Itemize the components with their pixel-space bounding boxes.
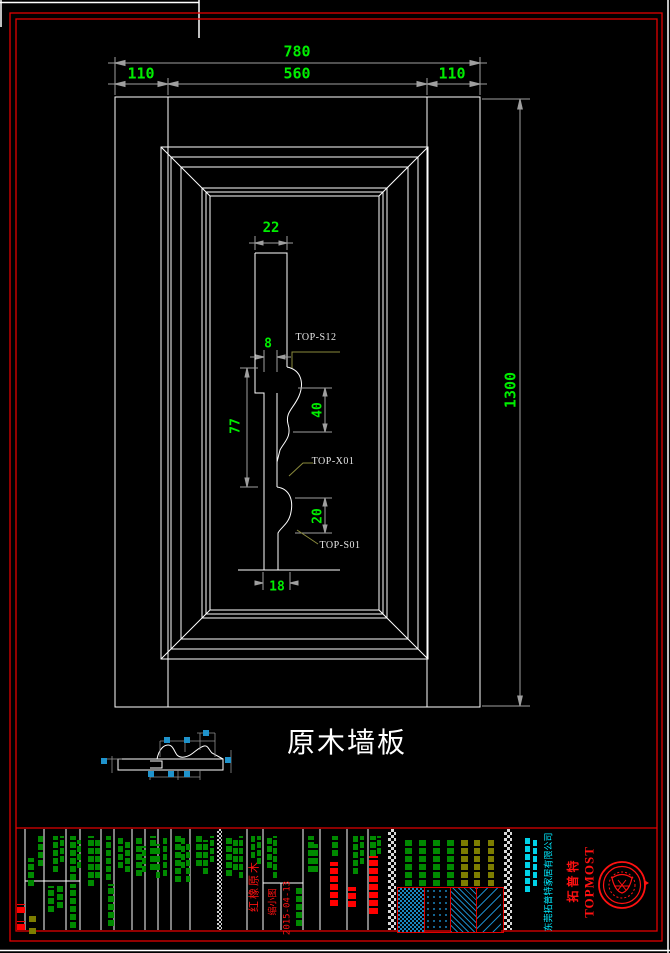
illegible-text-bar — [533, 838, 537, 886]
legend-swatch — [398, 888, 424, 932]
illegible-text-bar — [267, 836, 272, 868]
illegible-text-bar — [163, 838, 167, 876]
dim-left-stile: 110 — [127, 67, 154, 82]
dim-overall-width: 780 — [283, 45, 310, 60]
illegible-text-bar — [273, 836, 277, 878]
illegible-text-bar — [433, 838, 440, 886]
illegible-text-bar — [142, 846, 146, 872]
illegible-text-bar — [419, 838, 426, 886]
film-strip-divider — [504, 829, 512, 930]
illegible-text-bar — [405, 838, 412, 886]
dim-base: 18 — [269, 581, 285, 594]
illegible-text-bar — [370, 836, 376, 856]
page-edge-lines — [0, 0, 670, 953]
part-label-top-s01: TOP-S01 — [319, 541, 360, 551]
dim-lower-curve: 20 — [312, 508, 325, 524]
topmost-logo-seal — [599, 862, 649, 908]
tiny-cyan-dim-mark — [225, 757, 231, 763]
illegible-text-bar — [360, 836, 364, 864]
legend-swatch — [424, 888, 450, 932]
illegible-text-bar — [330, 862, 338, 906]
tiny-cyan-dim-mark — [168, 771, 174, 777]
illegible-text-bar — [239, 836, 243, 878]
illegible-text-bar — [257, 836, 261, 864]
illegible-text-bar — [474, 840, 480, 886]
dim-body: 77 — [230, 418, 243, 434]
legend-swatch — [450, 888, 476, 932]
illegible-text-bar — [70, 836, 76, 880]
dim-right-stile: 110 — [438, 67, 465, 82]
illegible-text-bar — [118, 836, 123, 868]
company-name: 东莞拓普特家居有限公司 — [545, 832, 554, 931]
illegible-text-bar — [314, 844, 318, 872]
illegible-text-bar — [186, 844, 190, 882]
dim-upper-curve: 40 — [312, 402, 325, 418]
drawing-linework — [0, 0, 670, 953]
illegible-text-bar — [203, 840, 208, 874]
illegible-text-bar — [17, 921, 25, 930]
reduced-scale-note: 缩小图 — [269, 888, 278, 915]
illegible-text-bar — [28, 858, 34, 886]
illegible-text-bar — [70, 884, 76, 928]
date-text: 2015-04-13 — [284, 881, 293, 935]
illegible-text-bar — [296, 888, 302, 926]
film-strip-divider — [217, 829, 222, 930]
illegible-text-bar — [447, 838, 454, 886]
tiny-cyan-dim-mark — [203, 730, 209, 736]
cad-sheet: { "colors": { "background": "#000000", "… — [0, 0, 670, 953]
illegible-text-bar — [125, 840, 130, 872]
illegible-text-bar — [210, 836, 214, 862]
illegible-text-bar — [348, 887, 356, 907]
illegible-text-bar — [108, 884, 114, 926]
illegible-text-bar — [251, 836, 255, 858]
illegible-text-bar — [77, 840, 81, 868]
material-text: 红橡原木 — [250, 860, 261, 912]
illegible-text-bar — [196, 836, 202, 866]
illegible-text-bar — [60, 836, 64, 862]
tiny-cyan-dim-mark — [148, 771, 154, 777]
drawing-title: 原木墙板 — [287, 730, 407, 758]
dim-tongue: 8 — [264, 338, 272, 351]
brand-english: TOPMOST — [583, 846, 596, 918]
illegible-text-bar — [525, 838, 530, 892]
illegible-text-bar — [181, 836, 185, 868]
sheet-border-red — [10, 13, 662, 941]
illegible-text-bar — [29, 927, 36, 934]
illegible-text-bar — [88, 836, 94, 886]
illegible-text-bar — [38, 836, 43, 866]
part-label-top-s12: TOP-S12 — [295, 333, 336, 343]
tiny-cyan-dim-mark — [101, 758, 107, 764]
illegible-text-bar — [488, 840, 494, 886]
illegible-text-bar — [53, 836, 58, 872]
legend-swatch — [476, 888, 501, 932]
illegible-text-bar — [226, 836, 232, 876]
illegible-text-bar — [233, 840, 238, 870]
illegible-text-bar — [48, 886, 54, 912]
illegible-text-bar — [353, 836, 358, 874]
illegible-text-bar — [106, 836, 111, 880]
illegible-text-bar — [332, 836, 338, 856]
dim-cap-width: 22 — [263, 221, 280, 235]
illegible-text-bar — [95, 838, 100, 878]
material-legend — [397, 887, 504, 933]
part-label-top-x01: TOP-X01 — [312, 457, 355, 467]
illegible-text-bar — [156, 844, 160, 878]
panel-front-view — [115, 97, 480, 707]
tiny-cyan-dim-mark — [184, 737, 190, 743]
illegible-text-bar — [377, 836, 381, 854]
illegible-text-bar — [17, 904, 25, 913]
dim-center-panel: 560 — [283, 67, 310, 82]
illegible-text-bar — [369, 856, 378, 914]
tiny-cyan-dim-mark — [184, 771, 190, 777]
brand-chinese: 拓普特 — [567, 857, 579, 902]
illegible-text-bar — [29, 915, 36, 922]
illegible-text-bar — [57, 886, 63, 908]
illegible-text-bar — [461, 840, 468, 886]
tiny-cyan-dim-mark — [164, 737, 170, 743]
film-strip-divider — [388, 829, 396, 930]
dim-panel-height: 1300 — [504, 372, 519, 408]
